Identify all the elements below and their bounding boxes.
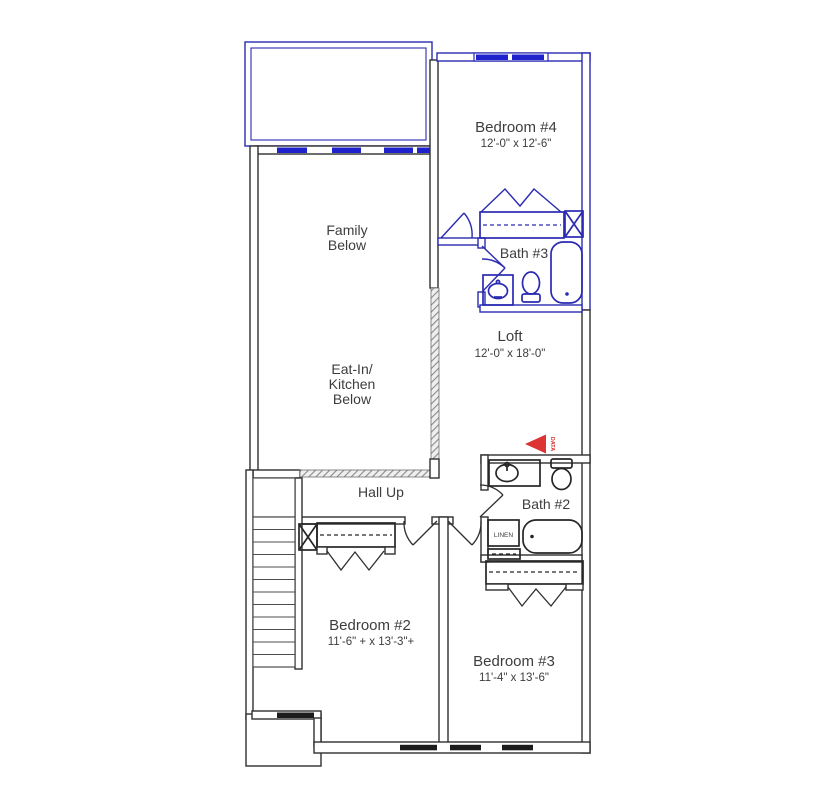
floor-plan-canvas: DATA LINEN (0, 0, 815, 808)
sink-icon (483, 275, 513, 305)
door-swing-icon (413, 521, 437, 545)
bedroom2-closet (299, 523, 395, 570)
upper-left-roof-box (245, 42, 432, 146)
window-icon (502, 745, 533, 751)
bedroom4-closet (480, 189, 583, 238)
window-icon (512, 55, 544, 61)
bedroom4-door (441, 213, 472, 238)
bathtub-icon (551, 242, 582, 303)
door-swing-icon (480, 495, 503, 517)
window-band (257, 146, 432, 154)
window-icon (332, 148, 361, 154)
eat-in-kitchen-label-3: Below (333, 391, 372, 407)
family-below-label-2: Below (328, 237, 367, 253)
window-icon (277, 713, 314, 719)
bedroom3-dims: 11'-4" x 13'-6" (479, 672, 549, 684)
bedroom3-label: Bedroom #3 (473, 653, 555, 670)
bedroom3-closet (486, 561, 583, 606)
window-icon (400, 745, 437, 751)
double-closet-door-icon (481, 189, 561, 212)
data-outlet-arrow-icon: DATA (525, 435, 555, 454)
bedroom4-dims: 12'-0" x 12'-6" (481, 138, 552, 150)
bifold-door-icon (508, 587, 566, 606)
window-icon (384, 148, 413, 154)
bedroom4-label: Bedroom #4 (475, 119, 557, 136)
window-icon (450, 745, 481, 751)
loft-dims: 12'-0" x 18'-0" (475, 348, 546, 360)
door-swing-icon (448, 521, 472, 545)
linen-label: LINEN (494, 532, 513, 539)
hall-up-label: Hall Up (358, 484, 404, 500)
bedroom2-label: Bedroom #2 (329, 617, 411, 634)
eat-in-kitchen-label-1: Eat-In/ (331, 361, 372, 377)
eat-in-kitchen-label-2: Kitchen (329, 376, 376, 392)
door-swing-icon (482, 268, 505, 292)
railing-hatch-icon (431, 288, 439, 462)
bath2-label: Bath #2 (522, 496, 570, 512)
window-icon (417, 148, 430, 154)
data-outlet-label: DATA (549, 437, 555, 451)
bathtub-icon (523, 520, 582, 553)
x-chase-icon (565, 211, 583, 237)
window-icon (277, 148, 307, 154)
family-below-label-1: Family (326, 222, 367, 238)
door-swing-icon (441, 213, 464, 238)
sink-icon (489, 460, 540, 486)
stair-landing (253, 478, 295, 517)
bifold-door-icon (327, 551, 384, 570)
linen-closet: LINEN (488, 520, 520, 559)
stairs-icon (253, 478, 295, 667)
toilet-icon (522, 272, 540, 302)
floor-plan-page: DATA LINEN (0, 0, 815, 808)
window-icon (476, 55, 508, 61)
bedroom2-dims: 11'-6" + x 13'-3"+ (328, 636, 415, 648)
loft-label: Loft (497, 328, 523, 345)
railing-hatch-icon (300, 470, 430, 477)
bath3-label: Bath #3 (500, 245, 548, 261)
